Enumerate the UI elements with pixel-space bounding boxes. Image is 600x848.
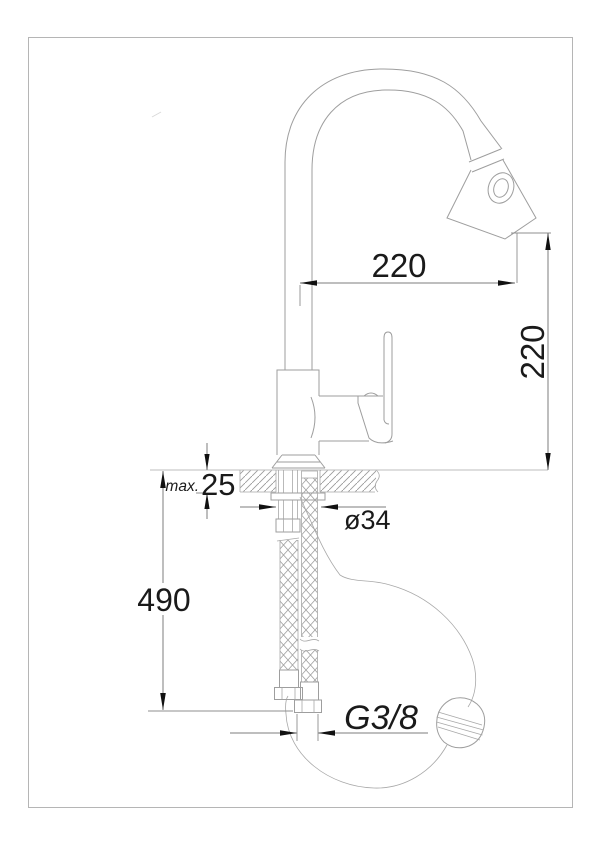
base-flange bbox=[272, 455, 325, 468]
dim-spout-reach: 220 bbox=[300, 233, 517, 306]
dim-label-deck-thickness: 25 bbox=[201, 467, 235, 502]
technical-drawing-page: 220 220 max. 25 ø34 490 G3/8 bbox=[0, 0, 600, 848]
paper-artifact bbox=[152, 112, 161, 117]
mounting-nut bbox=[276, 519, 300, 532]
spray-head-button bbox=[484, 169, 518, 207]
dim-label-hose-length: 490 bbox=[137, 582, 190, 618]
dim-thread-size: G3/8 bbox=[230, 699, 428, 741]
spray-head bbox=[447, 160, 536, 239]
dim-label-thread-size: G3/8 bbox=[344, 699, 418, 737]
dim-deck-thickness: max. 25 bbox=[165, 443, 235, 519]
faucet-installation-drawing: 220 220 max. 25 ø34 490 G3/8 bbox=[0, 0, 600, 848]
mounting-shank bbox=[279, 470, 298, 519]
lever-handle bbox=[384, 332, 392, 443]
dim-label-spout-height: 220 bbox=[514, 324, 551, 379]
faucet-spout-arch bbox=[285, 69, 504, 370]
hose-connector bbox=[437, 698, 485, 748]
faucet-body bbox=[277, 370, 393, 455]
dim-label-spout-reach: 220 bbox=[371, 247, 426, 284]
dim-label-max-prefix: max. bbox=[165, 478, 199, 495]
dim-label-hole-diameter: ø34 bbox=[344, 505, 391, 535]
supply-hose-left bbox=[275, 538, 303, 700]
